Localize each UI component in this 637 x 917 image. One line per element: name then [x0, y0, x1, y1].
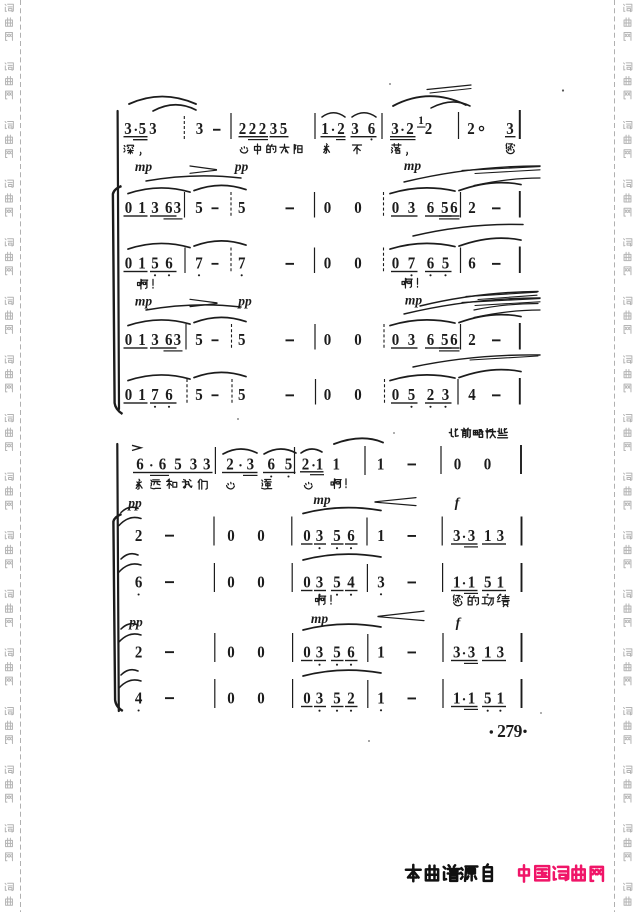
svg-text:0: 0 — [324, 386, 331, 404]
svg-text:1: 1 — [332, 456, 339, 474]
svg-text:1: 1 — [377, 644, 384, 662]
svg-text:6: 6 — [267, 456, 274, 474]
svg-text:6: 6 — [427, 199, 434, 217]
svg-text:3: 3 — [408, 331, 415, 349]
svg-text:0: 0 — [125, 331, 132, 349]
svg-text:0: 0 — [257, 527, 264, 545]
svg-text:0: 0 — [257, 644, 264, 662]
svg-text:3: 3 — [497, 527, 504, 545]
svg-text:2: 2 — [302, 456, 309, 474]
svg-text:6: 6 — [165, 255, 172, 273]
svg-text:1: 1 — [138, 255, 145, 273]
svg-text:5: 5 — [238, 199, 245, 217]
svg-text:5: 5 — [333, 690, 340, 708]
svg-text:3: 3 — [442, 386, 449, 404]
svg-text:0: 0 — [392, 199, 399, 217]
svg-text:1: 1 — [377, 456, 384, 474]
svg-text:2: 2 — [239, 120, 246, 138]
svg-text:3: 3 — [316, 574, 323, 592]
svg-text:3: 3 — [151, 199, 158, 217]
svg-text:6: 6 — [450, 199, 457, 217]
svg-text:0: 0 — [324, 199, 331, 217]
svg-text:0: 0 — [257, 690, 264, 708]
svg-text:5: 5 — [195, 331, 202, 349]
svg-text:6: 6 — [427, 255, 434, 273]
svg-text:0: 0 — [227, 690, 234, 708]
svg-text:3: 3 — [203, 456, 210, 474]
svg-text:6: 6 — [159, 456, 166, 474]
svg-text:5: 5 — [280, 120, 287, 138]
svg-text:7: 7 — [238, 255, 245, 273]
svg-text:0: 0 — [392, 331, 399, 349]
svg-text:1: 1 — [453, 574, 460, 592]
svg-text:3: 3 — [316, 527, 323, 545]
svg-text:6: 6 — [347, 644, 354, 662]
svg-text:5: 5 — [195, 386, 202, 404]
svg-text:0: 0 — [125, 255, 132, 273]
svg-text:7: 7 — [195, 255, 202, 273]
svg-text:2: 2 — [425, 120, 432, 138]
svg-text:1: 1 — [497, 690, 504, 708]
svg-text:3: 3 — [316, 690, 323, 708]
svg-text:6: 6 — [165, 331, 172, 349]
svg-text:1: 1 — [377, 690, 384, 708]
svg-text:0: 0 — [354, 331, 361, 349]
svg-text:3: 3 — [151, 331, 158, 349]
svg-text:2: 2 — [467, 120, 474, 138]
svg-text:5: 5 — [484, 574, 491, 592]
svg-text:1: 1 — [468, 574, 475, 592]
svg-text:f: f — [455, 496, 461, 511]
svg-text:1: 1 — [316, 456, 323, 474]
svg-text:5: 5 — [484, 690, 491, 708]
svg-text:3: 3 — [377, 574, 384, 592]
svg-text:2: 2 — [406, 120, 413, 138]
svg-text:5: 5 — [238, 386, 245, 404]
svg-text:5: 5 — [151, 255, 158, 273]
svg-text:1: 1 — [484, 527, 491, 545]
svg-text:0: 0 — [125, 386, 132, 404]
svg-text:5: 5 — [285, 456, 292, 474]
svg-text:3: 3 — [453, 527, 460, 545]
svg-text:1: 1 — [377, 527, 384, 545]
svg-text:0: 0 — [392, 386, 399, 404]
svg-text:279: 279 — [497, 721, 523, 741]
svg-text:1: 1 — [321, 120, 328, 138]
svg-text:0: 0 — [324, 255, 331, 273]
svg-text:6: 6 — [450, 331, 457, 349]
svg-text:5: 5 — [408, 386, 415, 404]
svg-text:3: 3 — [316, 644, 323, 662]
svg-text:4: 4 — [135, 690, 142, 708]
svg-text:0: 0 — [303, 527, 310, 545]
svg-text:0: 0 — [125, 199, 132, 217]
svg-text:6: 6 — [347, 527, 354, 545]
svg-text:0: 0 — [484, 456, 491, 474]
svg-text:mp: mp — [135, 294, 153, 309]
svg-text:6: 6 — [135, 574, 142, 592]
svg-text:2: 2 — [135, 527, 142, 545]
svg-text:3: 3 — [468, 644, 475, 662]
svg-text:3: 3 — [124, 120, 131, 138]
svg-text:2: 2 — [226, 456, 233, 474]
svg-text:5: 5 — [139, 120, 146, 138]
svg-text:5: 5 — [442, 255, 449, 273]
svg-text:6: 6 — [165, 386, 172, 404]
svg-text:5: 5 — [238, 331, 245, 349]
svg-text:2: 2 — [249, 120, 256, 138]
svg-text:f: f — [456, 616, 462, 631]
svg-text:2: 2 — [135, 644, 142, 662]
svg-text:1: 1 — [484, 644, 491, 662]
svg-text:3: 3 — [247, 456, 254, 474]
svg-text:5: 5 — [174, 456, 181, 474]
svg-text:0: 0 — [354, 255, 361, 273]
svg-text:0: 0 — [392, 255, 399, 273]
svg-text:0: 0 — [257, 574, 264, 592]
svg-text:3: 3 — [391, 120, 398, 138]
svg-text:pp: pp — [234, 159, 249, 174]
svg-text:mp: mp — [311, 611, 329, 626]
svg-text:1: 1 — [138, 386, 145, 404]
svg-text:1: 1 — [497, 574, 504, 592]
svg-text:1: 1 — [468, 690, 475, 708]
svg-text:2: 2 — [427, 386, 434, 404]
svg-text:5: 5 — [441, 199, 448, 217]
svg-text:6: 6 — [427, 331, 434, 349]
svg-text:3: 3 — [190, 456, 197, 474]
svg-text:3: 3 — [174, 331, 181, 349]
svg-text:1: 1 — [138, 331, 145, 349]
svg-text:3: 3 — [174, 199, 181, 217]
svg-text:5: 5 — [333, 527, 340, 545]
svg-text:0: 0 — [303, 574, 310, 592]
svg-text:3: 3 — [351, 120, 358, 138]
svg-text:5: 5 — [333, 644, 340, 662]
svg-text:1: 1 — [138, 199, 145, 217]
svg-text:6: 6 — [136, 456, 143, 474]
svg-text:0: 0 — [454, 456, 461, 474]
svg-text:4: 4 — [347, 574, 354, 592]
svg-text:0: 0 — [324, 331, 331, 349]
svg-text:5: 5 — [333, 574, 340, 592]
svg-text:3: 3 — [506, 120, 513, 138]
svg-text:2: 2 — [347, 690, 354, 708]
svg-text:2: 2 — [259, 120, 266, 138]
svg-text:3: 3 — [270, 120, 277, 138]
svg-text:0: 0 — [227, 527, 234, 545]
svg-text:7: 7 — [151, 386, 158, 404]
svg-text:4: 4 — [468, 386, 475, 404]
svg-text:3: 3 — [196, 120, 203, 138]
svg-text:1: 1 — [418, 115, 424, 127]
svg-text:mp: mp — [135, 159, 153, 174]
svg-text:2: 2 — [468, 331, 475, 349]
svg-text:1: 1 — [453, 690, 460, 708]
svg-text:2: 2 — [337, 120, 344, 138]
svg-text:3: 3 — [453, 644, 460, 662]
svg-text:5: 5 — [441, 331, 448, 349]
svg-text:0: 0 — [227, 574, 234, 592]
svg-text:5: 5 — [195, 199, 202, 217]
svg-text:0: 0 — [303, 644, 310, 662]
svg-text:2: 2 — [468, 199, 475, 217]
svg-text:3: 3 — [408, 199, 415, 217]
svg-text:0: 0 — [354, 386, 361, 404]
svg-text:7: 7 — [408, 255, 415, 273]
svg-text:mp: mp — [313, 492, 331, 507]
svg-text:0: 0 — [227, 644, 234, 662]
svg-text:3: 3 — [497, 644, 504, 662]
svg-text:0: 0 — [303, 690, 310, 708]
svg-text:mp: mp — [404, 158, 422, 173]
svg-text:3: 3 — [468, 527, 475, 545]
svg-text:6: 6 — [368, 120, 375, 138]
svg-text:0: 0 — [354, 199, 361, 217]
svg-text:3: 3 — [149, 120, 156, 138]
svg-text:6: 6 — [468, 255, 475, 273]
svg-text:pp: pp — [128, 615, 143, 630]
svg-text:6: 6 — [165, 199, 172, 217]
svg-text:mp: mp — [405, 293, 423, 308]
